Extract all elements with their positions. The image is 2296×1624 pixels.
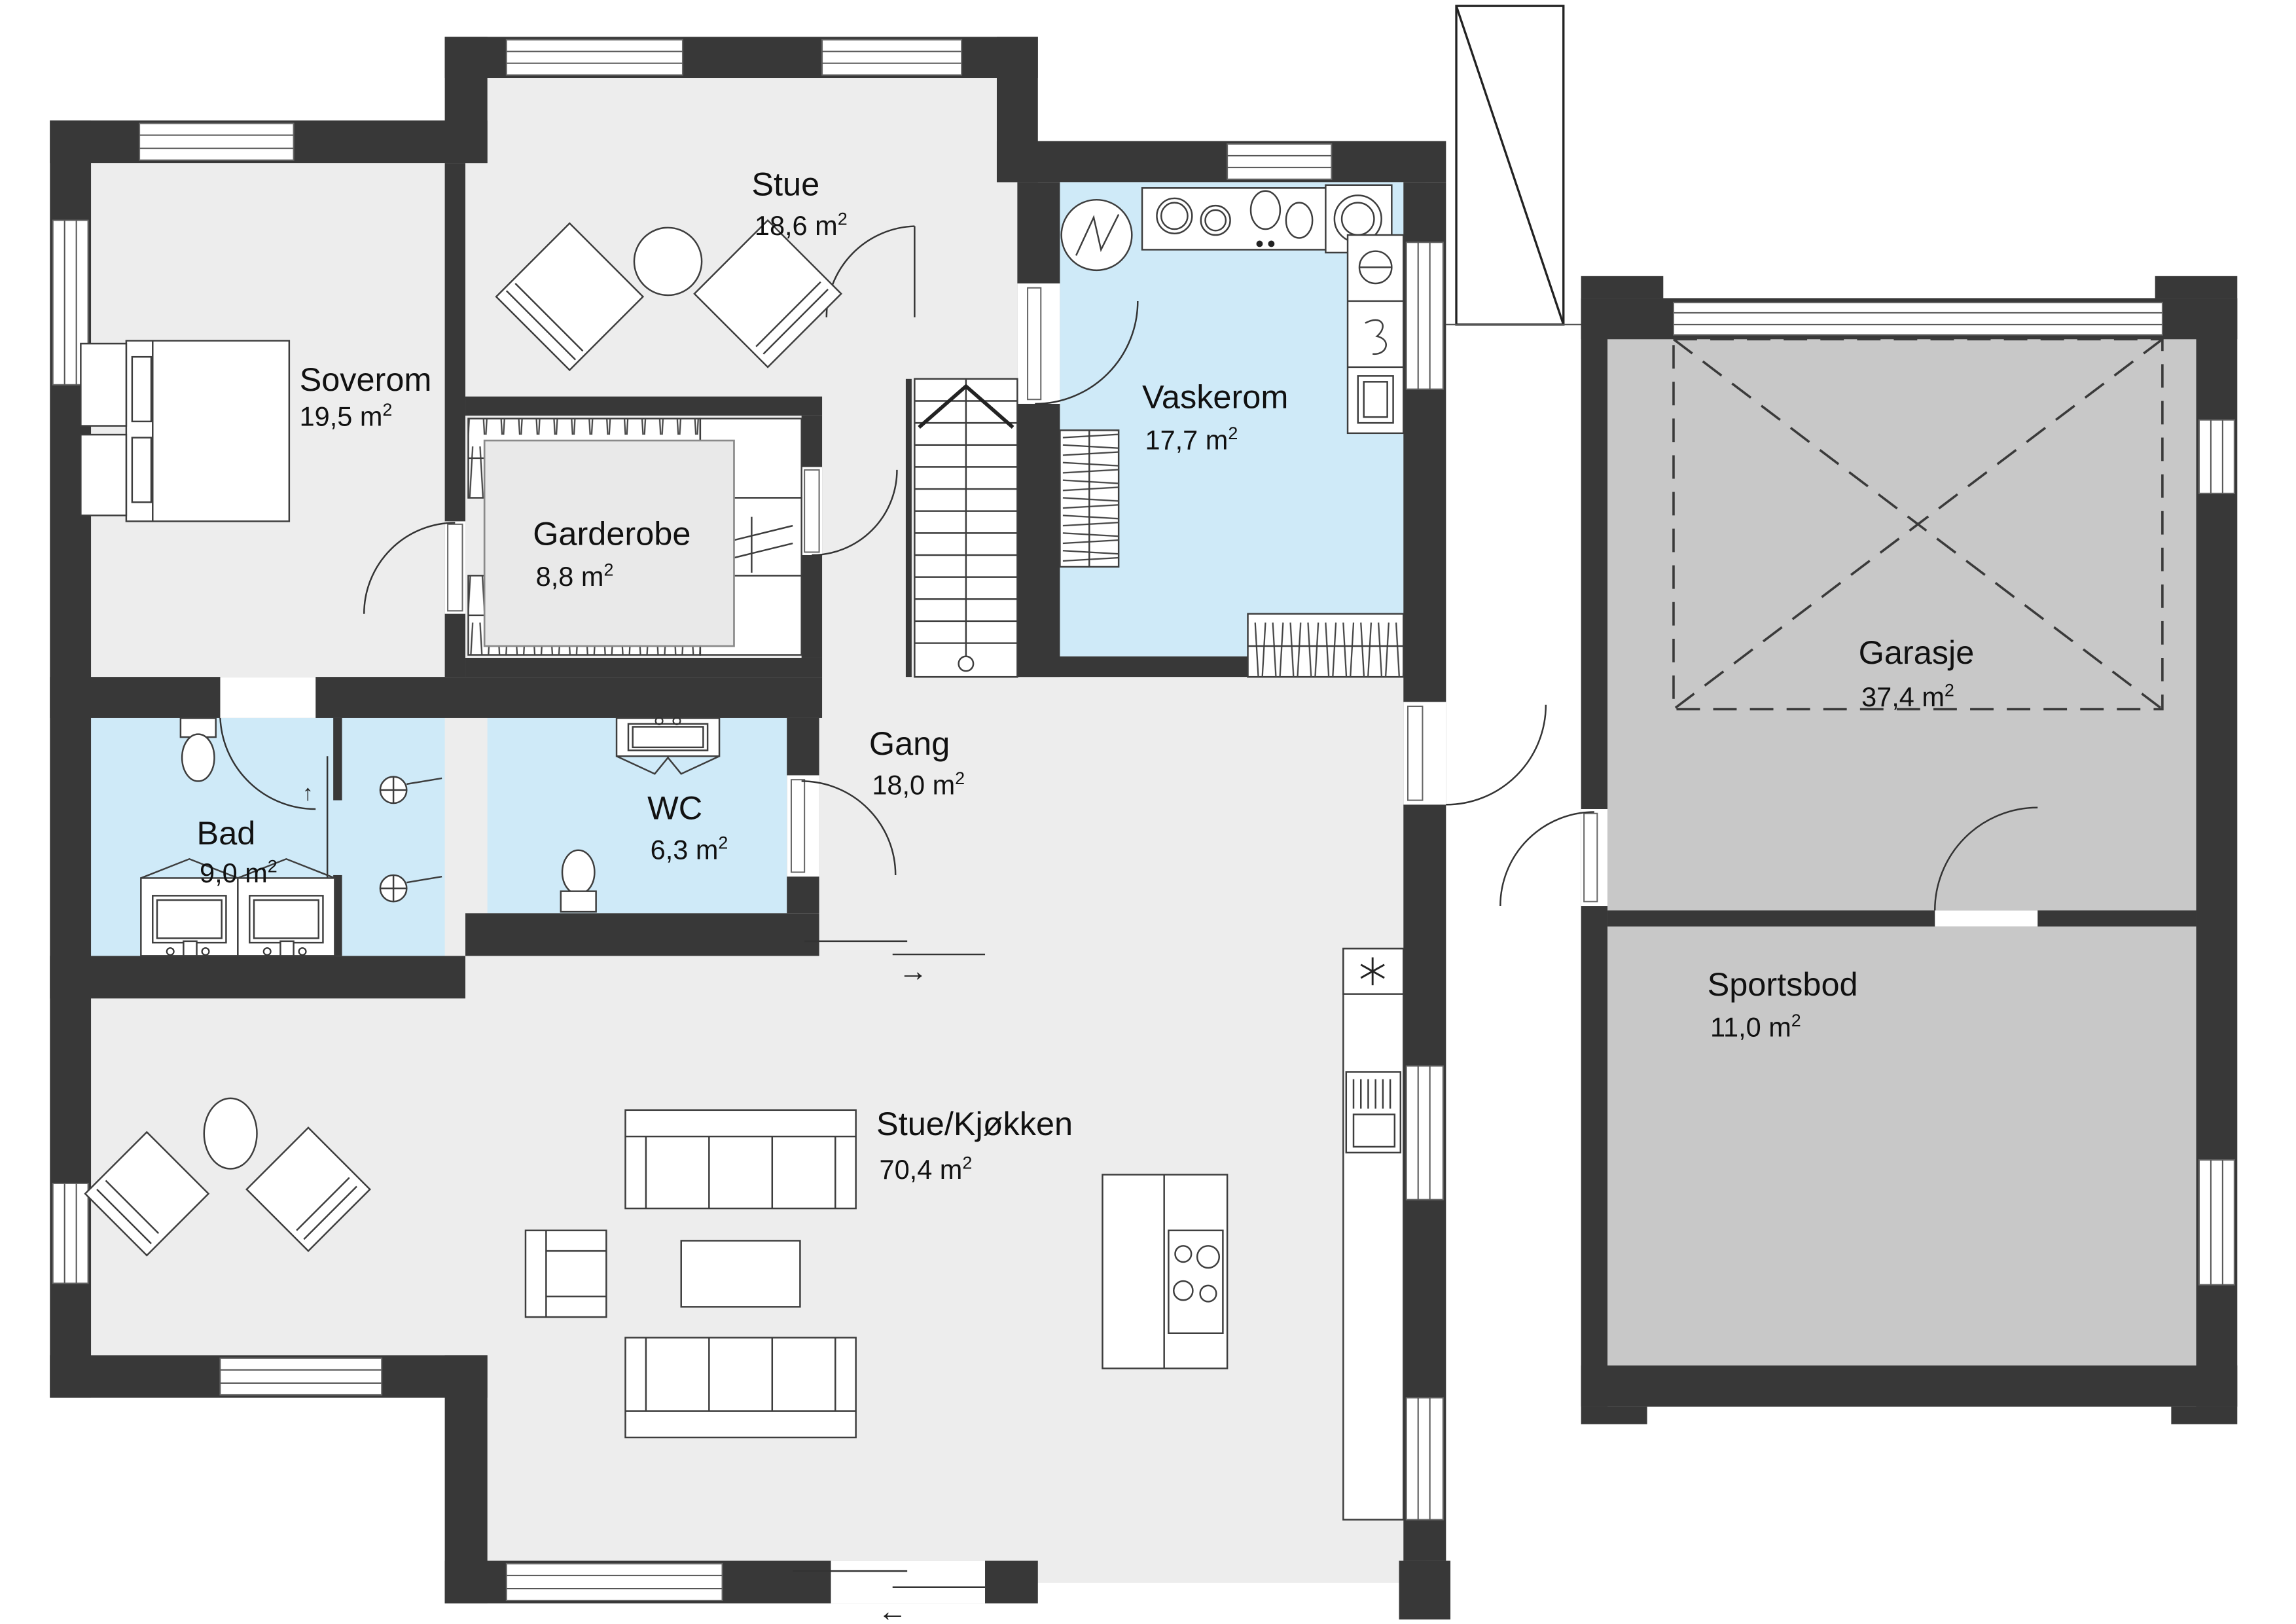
toilet (562, 850, 594, 894)
nightstand (81, 435, 126, 515)
svg-text:Sportsbod: Sportsbod (1708, 965, 1858, 1003)
window (507, 1564, 723, 1600)
window (822, 40, 961, 75)
window (507, 40, 683, 75)
toilet (182, 734, 214, 782)
svg-text:37,4 m2: 37,4 m2 (1861, 680, 1954, 712)
svg-text:Gang: Gang (869, 725, 950, 762)
svg-text:9,0 m2: 9,0 m2 (200, 856, 278, 888)
svg-text:Garasje: Garasje (1859, 634, 1975, 671)
window (1227, 144, 1331, 179)
svg-text:Garderobe: Garderobe (533, 514, 691, 552)
window (139, 124, 294, 160)
kitchen-counter (1343, 948, 1403, 1520)
svg-text:Stue/Kjøkken: Stue/Kjøkken (876, 1105, 1073, 1142)
sofa (626, 1110, 856, 1208)
floor-plan: ← → ↑ ↓ (0, 0, 2296, 1624)
svg-text:11,0 m2: 11,0 m2 (1710, 1011, 1801, 1043)
svg-text:WC: WC (647, 789, 702, 827)
staircase (914, 379, 1017, 677)
svg-text:18,0 m2: 18,0 m2 (872, 768, 965, 801)
sofa (626, 1337, 856, 1437)
side-table (204, 1098, 257, 1169)
svg-text:19,5 m2: 19,5 m2 (300, 400, 393, 432)
window (2199, 420, 2234, 494)
armchair (526, 1231, 606, 1317)
svg-text:Soverom: Soverom (300, 361, 432, 398)
window (2199, 1160, 2234, 1285)
svg-text:17,7 m2: 17,7 m2 (1145, 424, 1238, 456)
svg-text:Stue: Stue (751, 165, 819, 202)
door-arc-entrance (1446, 705, 1546, 805)
svg-text:18,6 m2: 18,6 m2 (755, 209, 848, 241)
slide-up-arrow: ↑ (302, 782, 314, 806)
pillow (132, 357, 151, 422)
window (53, 1183, 88, 1284)
window (1407, 1066, 1443, 1200)
nightstand (81, 344, 126, 426)
toilet-tank (561, 892, 596, 912)
window (1407, 242, 1443, 389)
side-table (634, 228, 702, 295)
svg-text:Bad: Bad (197, 814, 256, 852)
door-arc-garage-side (1500, 812, 1594, 907)
entry-direction-arrow: → (899, 954, 928, 987)
garage-door (1674, 302, 2162, 334)
svg-text:70,4 m2: 70,4 m2 (880, 1153, 973, 1185)
room-garasje (1607, 319, 2196, 1365)
svg-text:6,3 m2: 6,3 m2 (651, 833, 728, 865)
window (220, 1358, 382, 1395)
svg-text:Vaskerom: Vaskerom (1142, 378, 1288, 416)
coffee-table (681, 1240, 800, 1307)
slide-direction-arrow: ← (878, 1594, 907, 1624)
fan-icon (1062, 200, 1132, 270)
svg-text:8,8 m2: 8,8 m2 (536, 560, 614, 592)
window (1407, 1398, 1443, 1519)
pillow (132, 438, 151, 503)
